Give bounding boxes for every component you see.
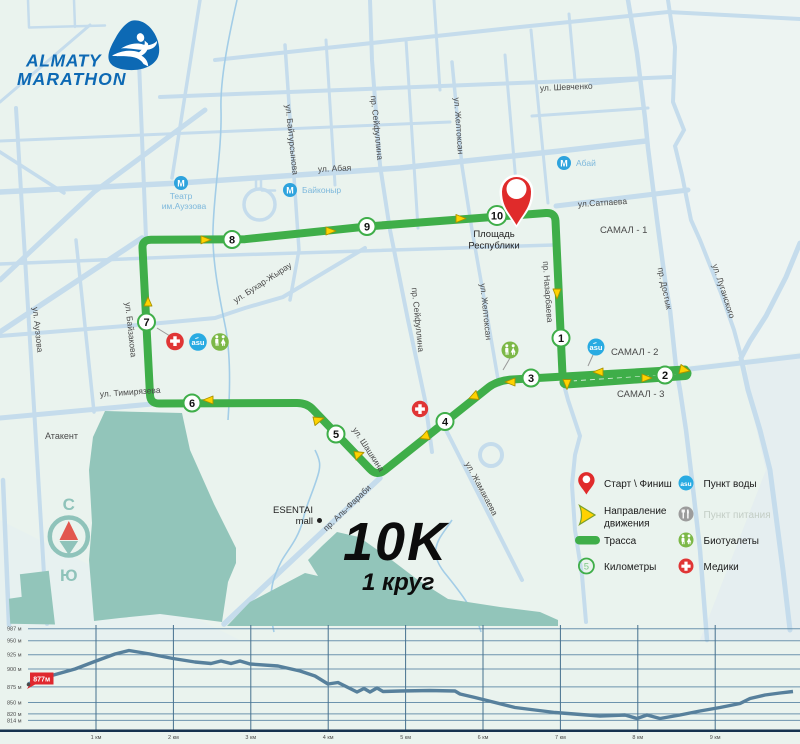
svg-text:ул. Абая: ул. Абая: [318, 163, 352, 174]
svg-text:9: 9: [364, 222, 370, 234]
svg-text:М: М: [177, 179, 185, 189]
svg-text:Театр: Театр: [170, 191, 193, 201]
svg-text:asu: asu: [590, 343, 603, 352]
svg-text:М: М: [560, 159, 568, 169]
svg-text:Медики: Медики: [704, 562, 739, 573]
svg-text:Республики: Республики: [468, 241, 519, 252]
svg-text:820 м: 820 м: [7, 712, 22, 718]
svg-text:Пункт питания: Пункт питания: [704, 510, 771, 521]
svg-text:987 м: 987 м: [7, 627, 22, 633]
svg-text:950 м: 950 м: [7, 639, 22, 645]
svg-text:1: 1: [558, 333, 564, 345]
svg-text:им.Ауэзова: им.Ауэзова: [162, 201, 207, 211]
svg-text:9 км: 9 км: [710, 735, 721, 741]
svg-text:4: 4: [442, 417, 449, 429]
svg-text:Абай: Абай: [576, 158, 596, 168]
svg-text:САМАЛ - 2: САМАЛ - 2: [611, 347, 658, 358]
svg-text:MARATHON: MARATHON: [17, 69, 127, 89]
svg-text:Биотуалеты: Биотуалеты: [704, 536, 759, 547]
svg-text:900 м: 900 м: [7, 667, 22, 673]
svg-text:1 км: 1 км: [91, 735, 102, 741]
svg-text:ESENTAI: ESENTAI: [273, 505, 313, 516]
svg-text:10K: 10K: [343, 512, 450, 572]
svg-text:1 круг: 1 круг: [362, 569, 435, 596]
svg-text:Километры: Километры: [604, 562, 656, 573]
svg-text:6: 6: [189, 398, 195, 410]
svg-text:5: 5: [584, 562, 589, 573]
svg-text:М: М: [286, 186, 294, 196]
svg-text:Пункт воды: Пункт воды: [704, 479, 757, 490]
svg-text:814 м: 814 м: [7, 719, 22, 725]
svg-text:5: 5: [333, 429, 339, 441]
svg-text:2: 2: [662, 370, 668, 382]
svg-text:ALMATY: ALMATY: [25, 51, 102, 71]
svg-text:877м: 877м: [33, 677, 50, 684]
svg-text:Трасса: Трасса: [604, 536, 637, 547]
svg-text:3 км: 3 км: [245, 735, 256, 741]
svg-text:Старт \ Финиш: Старт \ Финиш: [604, 479, 672, 490]
svg-text:7 км: 7 км: [555, 735, 566, 741]
svg-text:3: 3: [528, 373, 534, 385]
svg-text:10: 10: [491, 211, 503, 223]
svg-text:6 км: 6 км: [478, 735, 489, 741]
svg-text:925 м: 925 м: [7, 653, 22, 659]
svg-text:Атакент: Атакент: [45, 431, 78, 441]
svg-text:8 км: 8 км: [632, 735, 643, 741]
svg-text:Байконыр: Байконыр: [302, 185, 341, 195]
svg-text:asu: asu: [192, 338, 205, 347]
svg-text:Ю: Ю: [60, 566, 78, 585]
svg-text:движения: движения: [604, 519, 650, 530]
svg-text:2 км: 2 км: [168, 735, 179, 741]
svg-text:850 м: 850 м: [7, 701, 22, 707]
svg-text:4 км: 4 км: [323, 735, 334, 741]
svg-text:Площадь: Площадь: [473, 229, 514, 240]
svg-text:8: 8: [229, 235, 235, 247]
svg-text:mall: mall: [296, 516, 313, 527]
svg-text:875 м: 875 м: [7, 685, 22, 691]
svg-text:7: 7: [143, 317, 149, 329]
svg-text:Направление: Направление: [604, 506, 667, 517]
svg-text:С: С: [63, 495, 75, 514]
svg-text:САМАЛ - 1: САМАЛ - 1: [600, 225, 647, 236]
svg-text:САМАЛ - 3: САМАЛ - 3: [617, 389, 664, 400]
svg-text:asu: asu: [680, 481, 691, 488]
svg-text:5 км: 5 км: [400, 735, 411, 741]
